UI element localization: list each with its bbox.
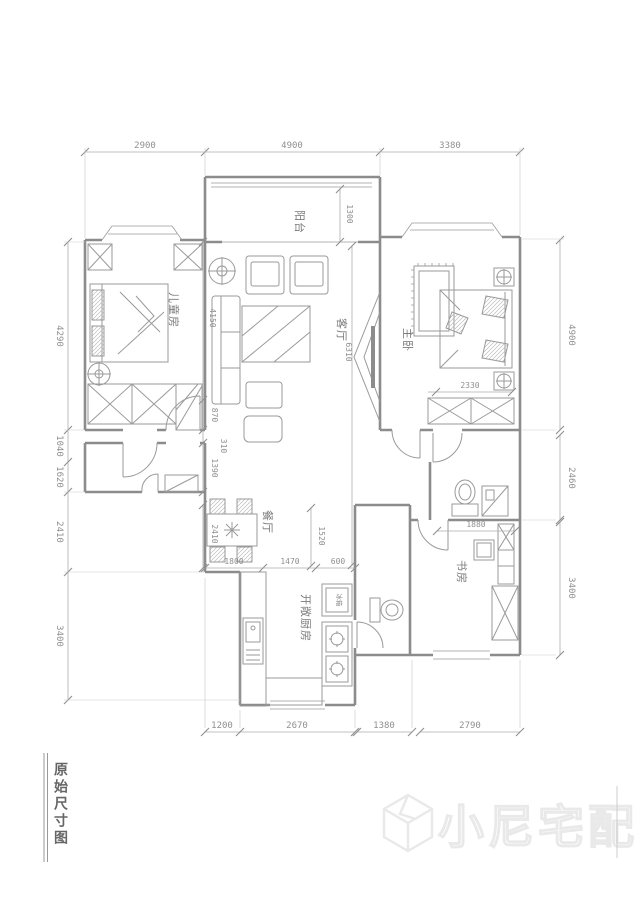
toilet: [452, 504, 478, 516]
living-room-furniture: [208, 256, 380, 442]
label-living-room: 客厅: [335, 318, 349, 342]
dim-balcony-depth: 1300: [345, 204, 354, 223]
dim-dining-depth: 2410: [210, 524, 219, 543]
dim-sofa-wall: 4150: [208, 308, 217, 327]
counter: [240, 572, 266, 706]
label-children-room: 儿童房: [167, 292, 181, 328]
dimension-bottom-chain: 1200 2670 1380 2790: [201, 578, 524, 736]
dim-hall-b: 310: [219, 439, 228, 454]
dim-study-top: 1880: [466, 520, 485, 529]
room-labels: 阳台 儿童房 客厅 主卧 餐厅 开敞厨房 书房 冰箱: [167, 210, 468, 642]
label-open-kitchen: 开敞厨房: [299, 594, 313, 642]
drawing-title: 原始尺寸图: [50, 762, 70, 847]
dim-kitchen-opening: 1520: [317, 526, 326, 545]
plant-icon: [224, 522, 240, 538]
tv: [371, 326, 375, 388]
dim-dining-width: 1800: [224, 557, 243, 566]
kitchen-furniture: [240, 572, 352, 706]
dim-bottom-1: 2670: [286, 721, 308, 731]
dim-living-length: 6310: [344, 342, 353, 361]
label-master-bedroom: 主卧: [401, 328, 414, 352]
bookshelf: [498, 524, 514, 584]
bathroom-fixtures: [370, 480, 508, 622]
dim-right-2: 3400: [566, 577, 576, 599]
dim-hall-c: 1390: [210, 458, 219, 477]
dim-top-2: 3380: [439, 141, 461, 151]
dim-left-4: 3400: [54, 625, 64, 647]
dim-hall-a: 870: [210, 408, 219, 423]
dim-left-2: 1620: [54, 466, 64, 488]
watermark-brand: 小尼宅配: [438, 800, 638, 854]
dim-left-1: 1040: [54, 435, 64, 457]
tv-wall: [354, 292, 380, 422]
chair: [210, 499, 225, 514]
dim-left-0: 4290: [54, 325, 64, 347]
study-furniture: [474, 524, 518, 640]
children-room-furniture: [87, 244, 202, 430]
dim-fridge-width: 600: [331, 557, 346, 566]
watermark: 小尼宅配: [384, 786, 638, 858]
dim-bottom-2: 1380: [373, 721, 395, 731]
dimension-right-chain: 4900 2460 3400: [522, 236, 576, 659]
dim-top-0: 2900: [134, 141, 156, 151]
label-balcony: 阳台: [293, 210, 307, 234]
floor-plan-page: 2900 4900 3380 4290 1040 1620 2410 3400 …: [0, 0, 640, 916]
dim-pass-width: 1470: [280, 557, 299, 566]
dim-right-0: 4900: [566, 324, 576, 346]
watermark-cube-logo-icon: [384, 795, 432, 851]
seat: [246, 382, 282, 408]
label-fridge: 冰箱: [335, 594, 344, 608]
toilet: [370, 598, 380, 622]
floor-plan-drawing: 2900 4900 3380 4290 1040 1620 2410 3400 …: [0, 0, 640, 916]
dim-top-1: 4900: [281, 141, 303, 151]
label-dining-room: 餐厅: [261, 510, 275, 534]
dim-left-3: 2410: [54, 521, 64, 543]
seat: [244, 416, 282, 442]
chair: [210, 547, 225, 562]
dim-bottom-0: 1200: [211, 721, 233, 731]
master-bedroom-furniture: [411, 263, 514, 424]
dim-right-1: 2460: [566, 467, 576, 489]
dim-master-wardrobe: 2330: [460, 381, 479, 390]
chair: [237, 499, 252, 514]
dim-bottom-3: 2790: [459, 721, 481, 731]
title-block-border: [44, 753, 48, 862]
label-study: 书房: [455, 560, 468, 584]
